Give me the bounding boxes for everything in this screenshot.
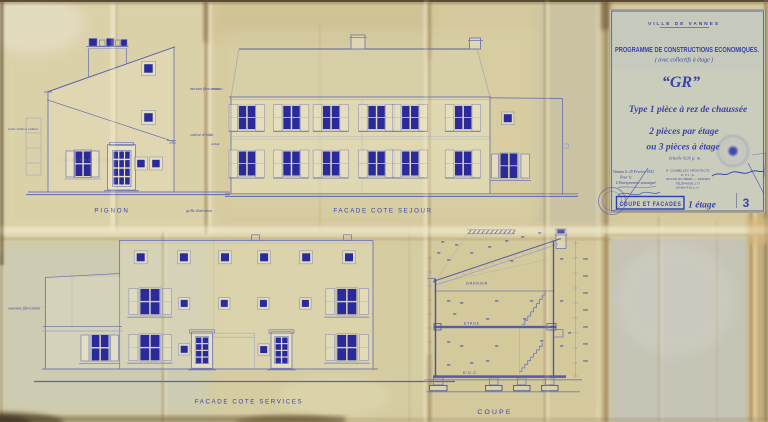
svg-text:ouverture fibro ciment: ouverture fibro ciment bbox=[8, 307, 41, 311]
svg-text:Pour le: Pour le bbox=[619, 176, 632, 180]
svg-text:sortie boîtes à ordures: sortie boîtes à ordures bbox=[8, 127, 39, 131]
svg-text:enduit: enduit bbox=[211, 142, 221, 146]
svg-text:1 étage: 1 étage bbox=[688, 201, 716, 211]
svg-text:ou 3 pièces à étage: ou 3 pièces à étage bbox=[646, 143, 720, 153]
svg-text:“GR”: “GR” bbox=[662, 74, 700, 91]
svg-text:grille d'aération: grille d'aération bbox=[186, 208, 212, 213]
svg-text:FACADE COTE SERVICES: FACADE COTE SERVICES bbox=[195, 399, 304, 406]
svg-text:corniche: corniche bbox=[211, 87, 223, 91]
svg-text:Vannes le 29 Février 1952: Vannes le 29 Février 1952 bbox=[613, 170, 654, 174]
svg-text:PROGRAMME DE CONSTRUCTIONS ECO: PROGRAMME DE CONSTRUCTIONS ECONOMIQUES. bbox=[615, 45, 759, 54]
svg-text:ETAGE: ETAGE bbox=[464, 322, 480, 326]
svg-text:COUPE ET FACADES: COUPE ET FACADES bbox=[620, 202, 682, 208]
svg-text:( avec collectifs à étage ): ( avec collectifs à étage ) bbox=[655, 57, 713, 64]
svg-text:échelle 0,01 p. m.: échelle 0,01 p. m. bbox=[676, 186, 700, 190]
svg-text:couleur d'enduit: couleur d'enduit bbox=[190, 133, 214, 137]
svg-text:L'Entrepreneur soussigné: L'Entrepreneur soussigné bbox=[615, 181, 656, 185]
svg-text:GRENIER: GRENIER bbox=[466, 282, 488, 286]
svg-text:2 pièces par étage: 2 pièces par étage bbox=[648, 127, 719, 137]
svg-text:R.D.C.: R.D.C. bbox=[463, 371, 479, 375]
svg-text:36 RUE DU MÉNÉ — VANNES: 36 RUE DU MÉNÉ — VANNES bbox=[666, 176, 710, 181]
svg-text:Type 1 pièce à rez de chaussée: Type 1 pièce à rez de chaussée bbox=[629, 105, 748, 115]
svg-text:3: 3 bbox=[743, 196, 750, 210]
svg-text:VILLE DE VANNES: VILLE DE VANNES bbox=[648, 21, 720, 27]
svg-text:R. CAUBELLEC ARCHITECTE: R. CAUBELLEC ARCHITECTE bbox=[666, 169, 709, 173]
svg-text:FACADE COTE SEJOUR: FACADE COTE SEJOUR bbox=[333, 208, 432, 215]
svg-text:COUPE: COUPE bbox=[477, 409, 512, 416]
